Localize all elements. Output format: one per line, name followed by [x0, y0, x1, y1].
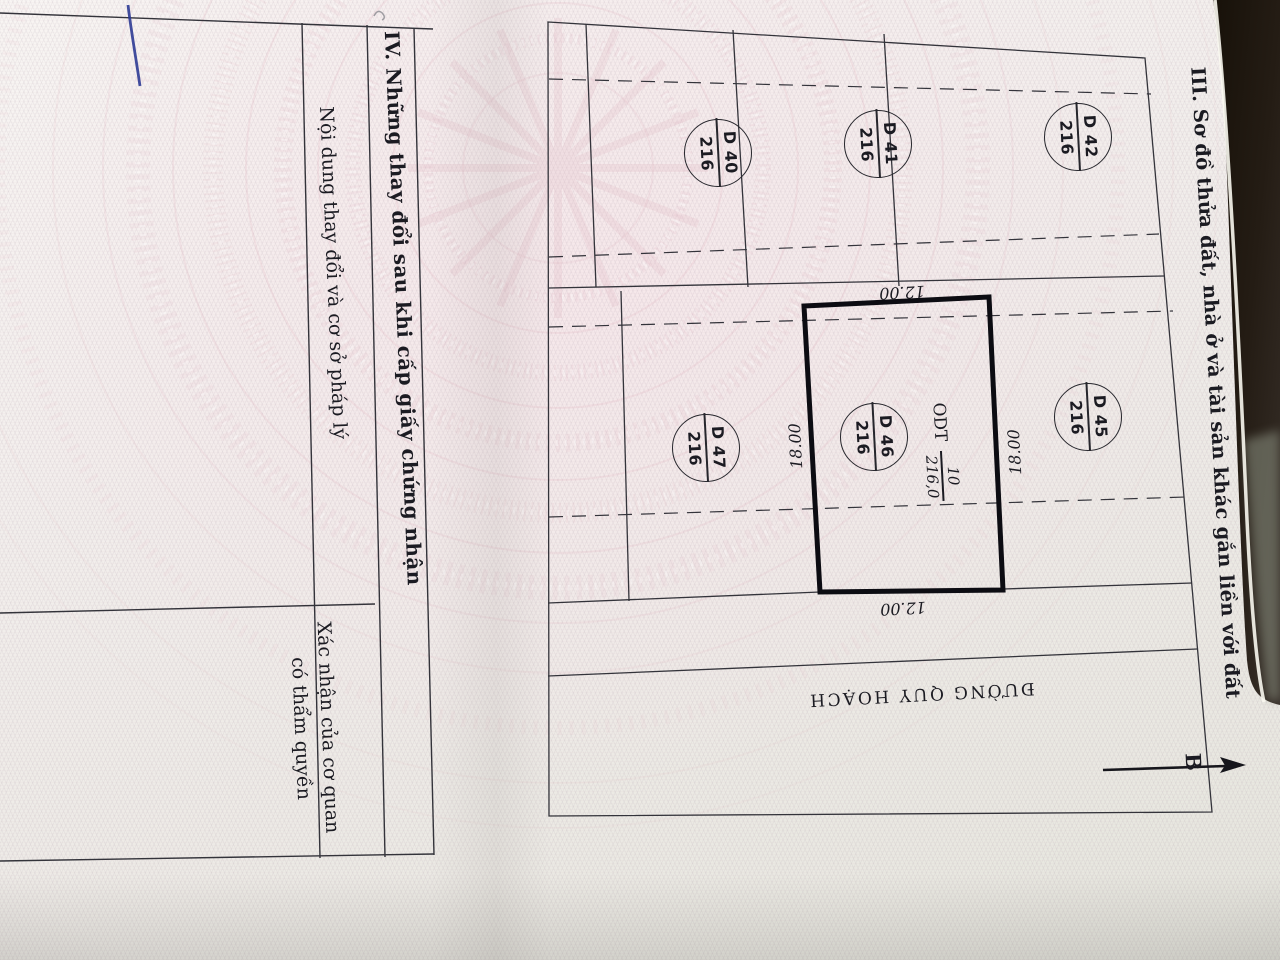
dimension-label: 12.00 — [866, 278, 937, 304]
parcel-number-over-area: 10 216,0 — [922, 450, 963, 502]
north-label: B — [1175, 746, 1207, 778]
plot-marker: D 47216 — [672, 414, 740, 482]
parcel-number: 10 — [944, 466, 962, 486]
plot-code: D 40 — [721, 130, 739, 174]
plot-marker: D 45216 — [1054, 383, 1122, 451]
parcel-area: 216,0 — [922, 455, 941, 499]
plot-area: 216 — [857, 127, 875, 163]
plot-marker: D 41216 — [844, 110, 912, 178]
plot-area: 216 — [685, 431, 703, 467]
plot-marker: D 42216 — [1044, 103, 1112, 171]
plot-code: D 42 — [1081, 114, 1099, 158]
dimension-label: 12.00 — [867, 594, 938, 620]
plot-code: D 45 — [1091, 394, 1109, 438]
plot-code: D 46 — [877, 414, 895, 458]
photographed-land-certificate: III. Sơ đồ thửa đất, nhà ở và tài sản kh… — [0, 0, 1280, 960]
section4-column-confirm-header: Xác nhận của cơ quan có thẩm quyền — [279, 592, 346, 864]
plot-area: 216 — [1067, 400, 1085, 436]
plot-area: 216 — [853, 420, 871, 456]
plot-marker: D 46216 — [840, 403, 908, 471]
plot-code: D 41 — [881, 121, 899, 165]
plot-code: D 47 — [709, 425, 727, 469]
confirm-line2: có thẩm quyền — [287, 657, 315, 801]
emblem-watermark — [0, 0, 1218, 828]
pen-mark — [128, 5, 140, 86]
stray-mark — [374, 11, 384, 20]
plot-marker: D 40216 — [684, 119, 752, 187]
north-arrow — [1103, 757, 1246, 773]
plot-area: 216 — [697, 136, 715, 172]
emblem-star-spokes — [408, 18, 708, 318]
land-use-code: ODT — [928, 402, 950, 442]
dimension-label: 18.00 — [1003, 416, 1029, 487]
focus-parcel-annotation: ODT 10 216,0 — [907, 376, 975, 529]
plot-area: 216 — [1057, 120, 1075, 156]
dimension-label: 18.00 — [784, 410, 810, 481]
